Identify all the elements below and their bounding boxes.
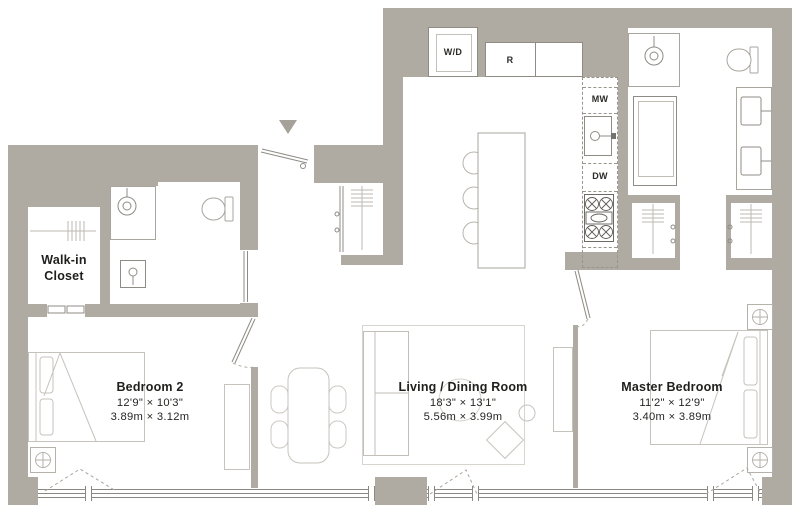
walk-in-closet-doors [48, 306, 84, 313]
master-bedroom-dims-metric: 3.40m × 3.89m [592, 410, 752, 424]
wall-bath2-right [240, 182, 258, 250]
master-toilet-icon [727, 47, 758, 73]
master-nightstand-top [747, 304, 773, 330]
wall-coatcloset-bottom [341, 255, 383, 265]
dining-chairs [271, 386, 346, 448]
floor-plan: W/D R MW DW [0, 0, 800, 514]
master-bath-double-vanity [736, 87, 772, 190]
entry-door [261, 149, 308, 169]
wall-left [8, 145, 28, 505]
wall-above-wic [28, 169, 100, 207]
wall-wic-bath [100, 186, 110, 304]
window-mullion [707, 486, 714, 501]
wall-window-pier [375, 477, 427, 505]
range [584, 194, 614, 242]
master-door [575, 270, 590, 327]
island-stools [463, 152, 485, 244]
wall-kitchen-left [383, 28, 403, 265]
refrigerator-label: R [486, 42, 534, 77]
wall-above-bath2 [158, 169, 258, 182]
master-nightstand-bottom [747, 447, 773, 473]
living-dining-dims-metric: 5.56m × 3.99m [373, 410, 553, 424]
bedroom2-name: Bedroom 2 [70, 380, 230, 394]
wall-corner-bl [8, 477, 38, 505]
walk-in-closet-name-line2: Closet [19, 269, 109, 283]
bath2-vanity [110, 186, 156, 240]
wall-above-vanity [100, 169, 158, 186]
entry-arrow-icon [279, 120, 297, 134]
wardrobe2-niche [731, 203, 772, 258]
living-dining-dims-imperial: 18'3" × 13'1" [373, 396, 553, 410]
window-mullion [85, 486, 92, 501]
window-mullion [368, 486, 375, 501]
bedroom2-dims-metric: 3.89m × 3.12m [70, 410, 230, 424]
wall-living-master [573, 325, 578, 488]
wall-right [772, 8, 792, 505]
dining-table [288, 368, 329, 463]
coat-closet-niche [341, 183, 383, 255]
living-dining-label: Living / Dining Room 18'3" × 13'1" 5.56m… [373, 380, 553, 424]
walk-in-closet-label: Walk-in Closet [19, 253, 109, 286]
wardrobe1-niche [632, 203, 675, 258]
dishwasher-label: DW [582, 162, 618, 190]
bedroom2-nightstand [30, 447, 56, 473]
master-bedroom-label: Master Bedroom 11'2" × 12'9" 3.40m × 3.8… [592, 380, 752, 424]
master-bedroom-name: Master Bedroom [592, 380, 752, 394]
window-mullion [428, 486, 435, 501]
bath2-door [244, 251, 248, 302]
bedroom2-dims-imperial: 12'9" × 10'3" [70, 396, 230, 410]
living-dining-name: Living / Dining Room [373, 380, 553, 394]
master-bedroom-dims-imperial: 11'2" × 12'9" [592, 396, 752, 410]
microwave-label: MW [582, 86, 618, 112]
kitchen-sink [584, 116, 612, 156]
wall-topleft-band [28, 145, 258, 169]
wall-bedroom2-living [251, 367, 258, 488]
master-shower [633, 96, 677, 186]
bath2-toilet-icon [202, 197, 233, 221]
bath2-shower [120, 260, 146, 288]
window-mullion [752, 486, 759, 501]
master-bath-vanity [628, 33, 680, 87]
wall-bedroom2-top-b [85, 304, 251, 317]
tv-console [553, 347, 573, 432]
washer-dryer-label: W/D [428, 27, 478, 77]
walk-in-closet-name-line1: Walk-in [19, 253, 109, 267]
wall-corner-br [762, 477, 792, 505]
kitchen-island [478, 133, 525, 268]
wall-top [383, 8, 792, 28]
window-mullion [472, 486, 479, 501]
bedroom2-label: Bedroom 2 12'9" × 10'3" 3.89m × 3.12m [70, 380, 230, 424]
bedroom2-door [232, 318, 255, 368]
wall-bedroom2-top-a [28, 304, 47, 317]
